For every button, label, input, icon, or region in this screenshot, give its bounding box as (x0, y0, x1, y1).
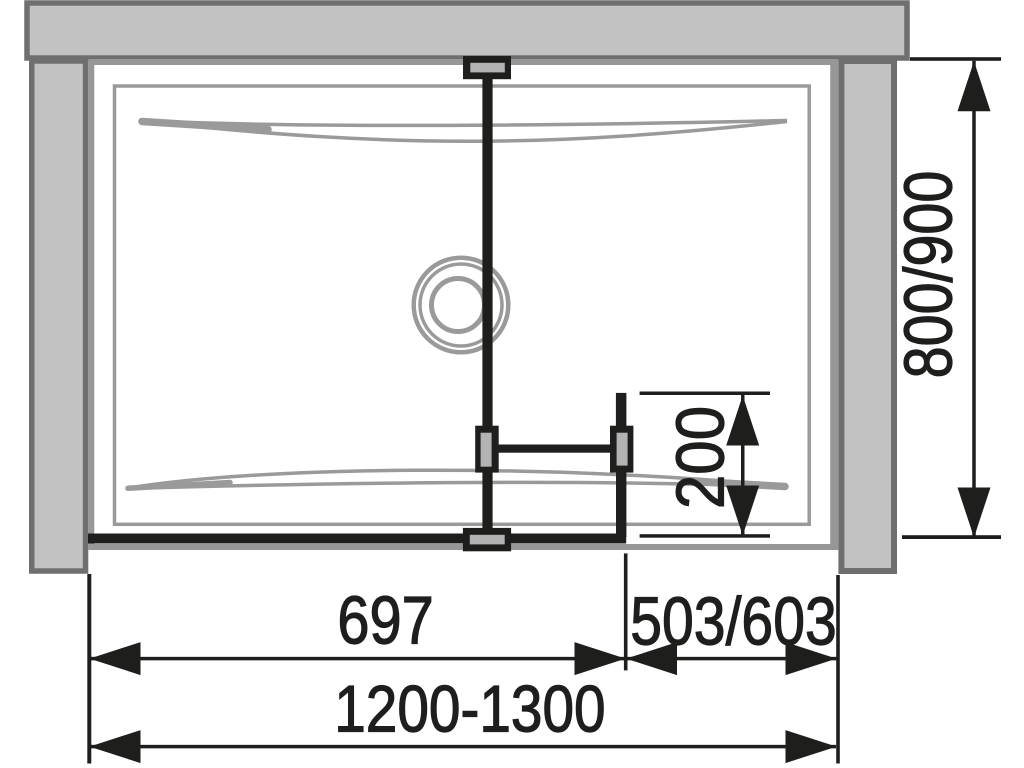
svg-text:697: 697 (337, 583, 433, 658)
svg-text:1200-1300: 1200-1300 (334, 673, 605, 747)
svg-text:800/900: 800/900 (891, 171, 967, 379)
svg-text:200: 200 (662, 406, 738, 509)
svg-text:503/603: 503/603 (630, 584, 836, 660)
